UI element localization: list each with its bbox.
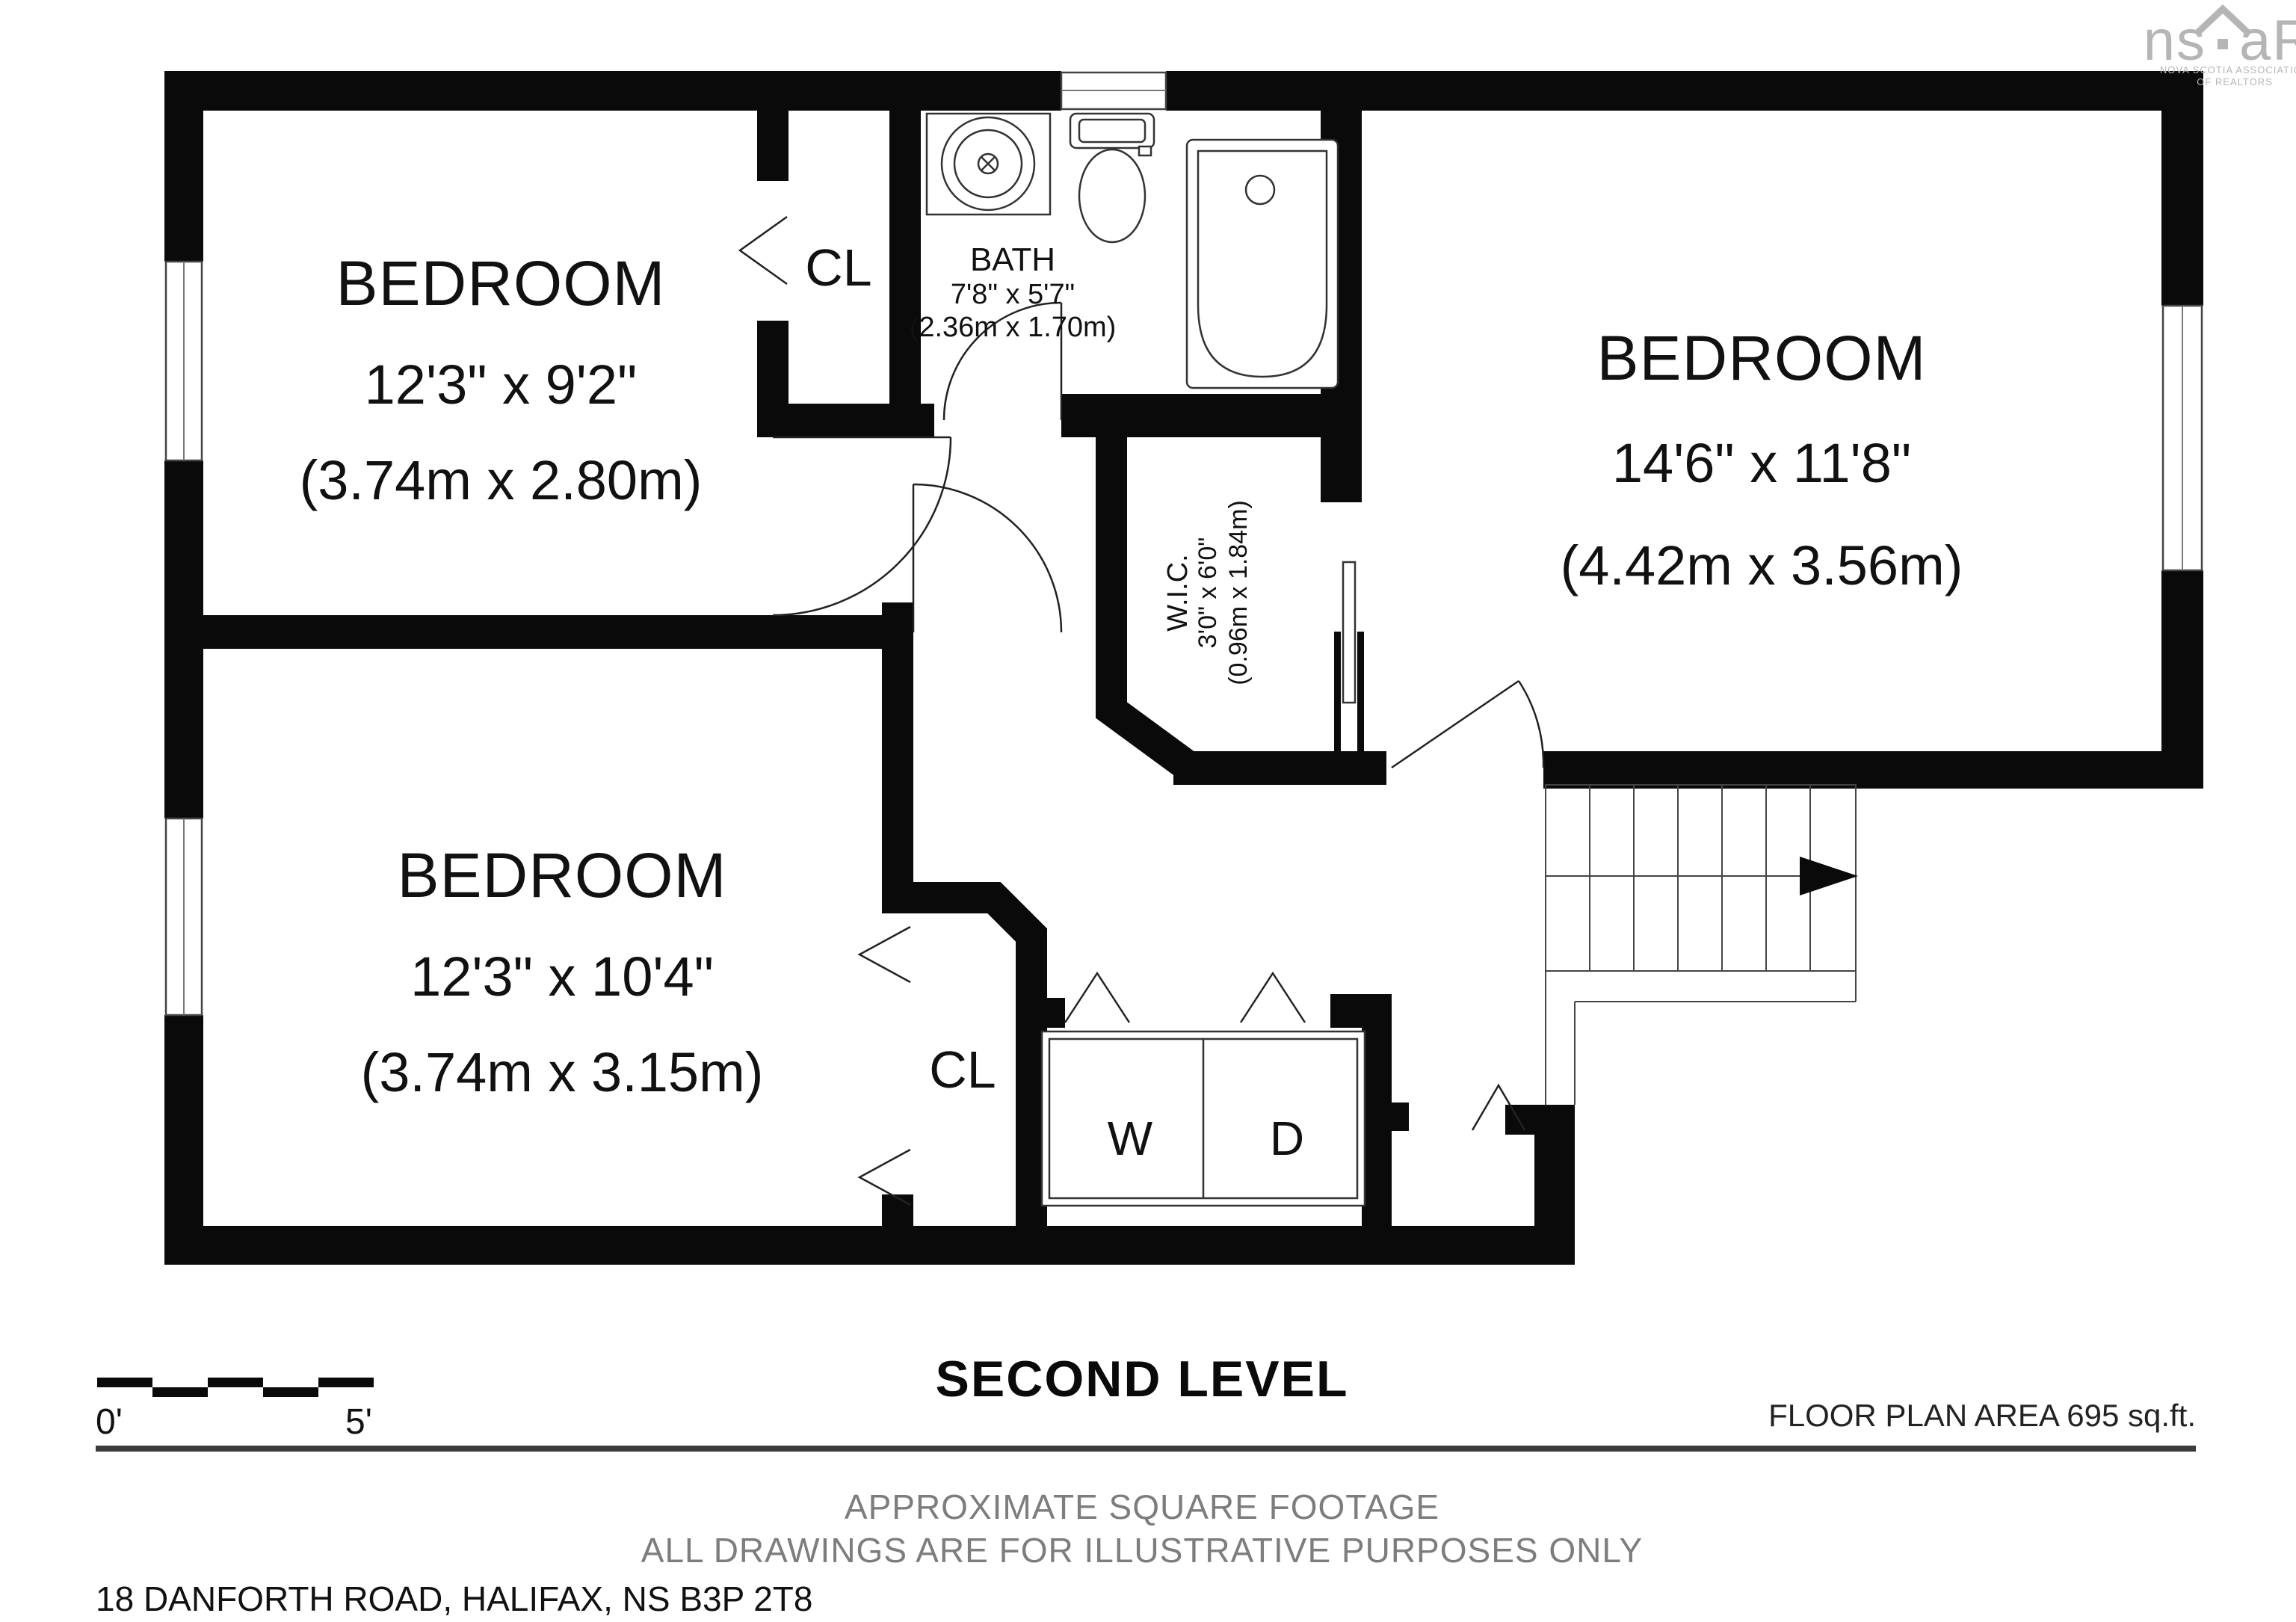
room-name: BATH [970,241,1055,278]
room-size-metric: (3.74m x 2.80m) [300,449,703,511]
room-size-imperial: 12'3" x 10'4" [410,946,714,1008]
closet-bottom-label: CL [929,1040,996,1099]
washer-dryer-unit: W D [1042,1032,1365,1206]
room-name: BEDROOM [397,840,726,910]
room-label-bedroom-top-left: BEDROOM 12'3" x 9'2" (3.74m x 2.80m) [300,248,703,511]
dryer-label: D [1270,1111,1304,1165]
room-name: W.I.C. [1162,554,1194,631]
floor-plan-area-label: FLOOR PLAN AREA 695 sq.ft. [1768,1398,2196,1433]
bathtub [1187,140,1338,388]
logo-chimney-icon [2218,39,2228,49]
room-name: BEDROOM [336,248,665,318]
scale-end-label: 5' [345,1402,372,1442]
room-size-metric: (4.42m x 3.56m) [1561,534,1963,596]
room-size-imperial: 14'6" x 11'8" [1612,432,1911,494]
room-size-imperial: 12'3" x 9'2" [365,354,638,416]
bifold-icon-laundry-left [1065,973,1129,1023]
bifold-icon-closet-bottom-upper [860,927,910,982]
bifold-icon-laundry-right [1241,973,1305,1023]
scale-bar: 0' 5' [96,1378,374,1442]
toilet [1070,114,1154,242]
window-bedroom-bottom-left [166,818,202,1015]
room-label-bedroom-right: BEDROOM 14'6" x 11'8" (4.42m x 3.56m) [1561,323,1963,596]
page-title: SECOND LEVEL [936,1351,1349,1407]
room-size-imperial: 7'8" x 5'7" [951,279,1075,310]
divider-rule [96,1446,2196,1452]
door-bedroom-right [1392,681,1543,768]
window-bedroom-right [2163,306,2202,570]
bifold-icon-closet-top [740,217,787,284]
disclaimer-line1: APPROXIMATE SQUARE FOOTAGE [845,1487,1439,1526]
logo-text-right: aR [2239,9,2296,73]
disclaimer-line2: ALL DRAWINGS ARE FOR ILLUSTRATIVE PURPOS… [641,1531,1643,1570]
room-label-bath: BATH 7'8" x 5'7" (2.36m x 1.70m) [910,241,1117,343]
staircase [1546,785,1858,1105]
closet-top-label: CL [805,238,871,297]
window-bedroom-top-left [166,262,202,460]
window-bathroom [1061,73,1166,109]
room-size-metric: (3.74m x 3.15m) [361,1041,764,1103]
wic-sliding-door [1343,562,1355,703]
logo-text-left: ns [2144,9,2206,73]
logo-caption-line1: NOVA SCOTIA ASSOCIATION [2160,64,2296,75]
stair-direction-arrow-icon [1800,857,1858,895]
room-label-bedroom-bottom-left: BEDROOM 12'3" x 10'4" (3.74m x 3.15m) [361,840,764,1103]
door-bedroom-bottom-left [913,484,1061,632]
washer-label: W [1108,1111,1153,1165]
floor-plan-page: W D BEDROOM 12'3" x 9'2" (3.74m x 2.80m)… [0,0,2296,1622]
room-name: BEDROOM [1596,323,1926,393]
logo-caption-line2: OF REALTORS [2197,76,2273,87]
bathroom-vanity-sink [927,114,1050,215]
room-label-wic: W.I.C. 3'0" x 6'0" (0.96m x 1.84m) [1162,500,1253,685]
door-bedroom-top-left [773,437,951,615]
property-address: 18 DANFORTH ROAD, HALIFAX, NS B3P 2T8 [96,1579,813,1618]
scale-start-label: 0' [96,1402,123,1442]
room-size-metric: (0.96m x 1.84m) [1224,500,1253,685]
room-size-metric: (2.36m x 1.70m) [910,312,1117,343]
room-size-imperial: 3'0" x 6'0" [1194,537,1222,649]
